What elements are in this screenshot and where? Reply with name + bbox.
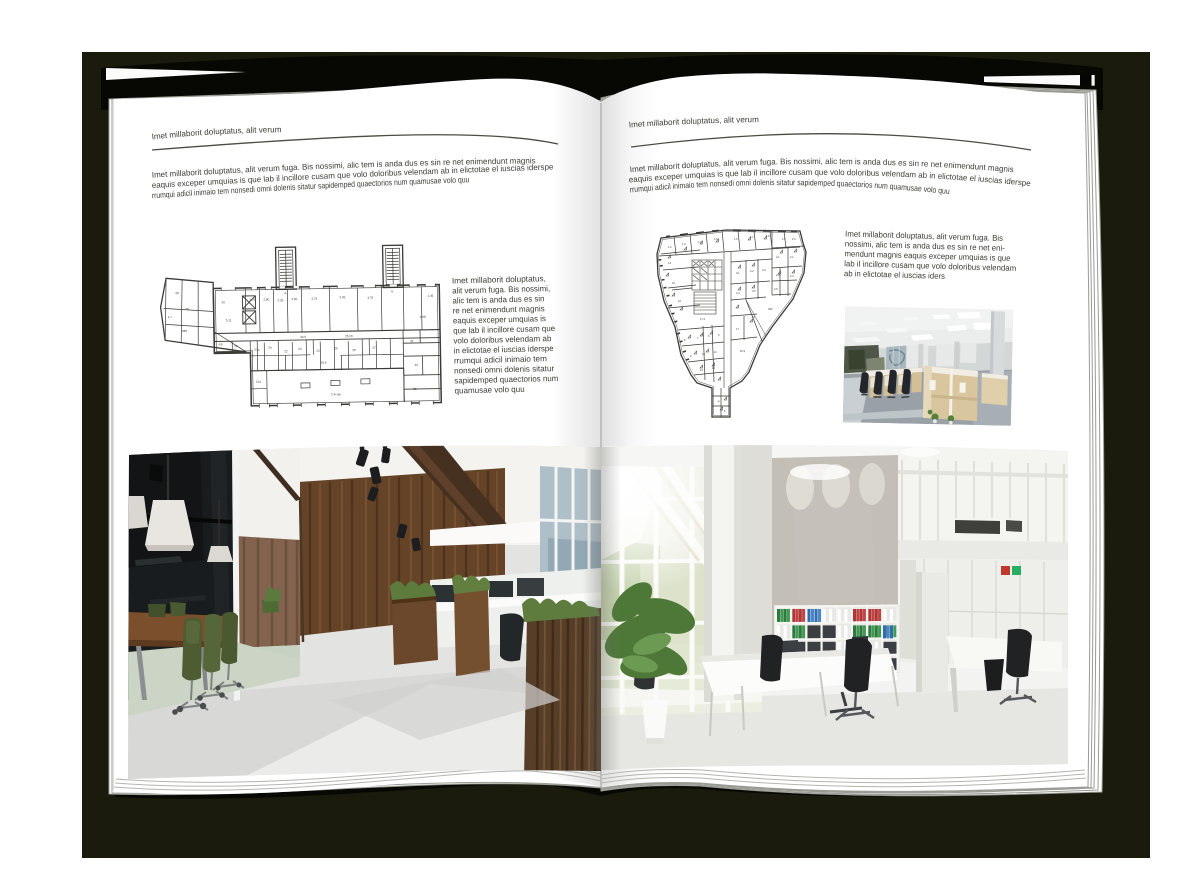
svg-text:Б: Б — [391, 289, 393, 293]
svg-text:17.2: 17.2 — [700, 317, 706, 321]
svg-text:A: A — [284, 291, 286, 295]
svg-text:1.5: 1.5 — [714, 237, 718, 241]
svg-text:26: 26 — [234, 344, 238, 348]
svg-text:286: 286 — [182, 329, 187, 333]
svg-text:2.0: 2.0 — [792, 237, 796, 241]
svg-text:3.3: 3.3 — [762, 268, 766, 272]
svg-text:1.6: 1.6 — [734, 237, 738, 241]
svg-text:24: 24 — [316, 349, 320, 353]
svg-text:2.30: 2.30 — [277, 298, 283, 302]
svg-text:3.75: 3.75 — [367, 296, 373, 300]
svg-text:40.9: 40.9 — [300, 335, 306, 339]
svg-text:1.8: 1.8 — [766, 234, 770, 238]
svg-text:300: 300 — [768, 307, 773, 311]
svg-text:1.9: 1.9 — [782, 237, 786, 241]
svg-text:2.5: 2.5 — [774, 287, 778, 291]
svg-text:20.9: 20.9 — [740, 349, 746, 353]
svg-text:3.09: 3.09 — [339, 295, 345, 299]
svg-text:22: 22 — [284, 349, 288, 353]
svg-text:2a: 2a — [268, 345, 272, 349]
svg-text:3.4: 3.4 — [736, 291, 740, 295]
svg-text:2.4: 2.4 — [790, 274, 794, 278]
svg-text:1.7: 1.7 — [750, 235, 754, 239]
svg-text:27: 27 — [372, 346, 376, 350]
svg-text:27a: 27a — [254, 348, 259, 352]
svg-text:3.75: 3.75 — [311, 297, 317, 301]
svg-text:3.00: 3.00 — [291, 297, 297, 301]
svg-text:12a: 12a — [256, 380, 261, 384]
svg-text:33: 33 — [413, 387, 417, 391]
svg-text:3.1: 3.1 — [736, 271, 740, 275]
svg-text:2.1: 2.1 — [776, 255, 780, 259]
svg-text:25.20: 25.20 — [345, 334, 353, 338]
svg-text:3.5: 3.5 — [752, 289, 756, 293]
svg-text:23: 23 — [298, 347, 302, 351]
svg-text:4.7: 4.7 — [168, 315, 173, 319]
svg-text:28: 28 — [175, 291, 179, 295]
svg-text:9.08: 9.08 — [420, 315, 426, 319]
svg-text:26: 26 — [352, 348, 356, 352]
svg-text:2.2: 2.2 — [790, 255, 794, 259]
svg-text:2-й зал: 2-й зал — [331, 392, 341, 396]
svg-text:2.3: 2.3 — [776, 273, 780, 277]
svg-text:1.3: 1.3 — [682, 242, 686, 246]
svg-text:4.8: 4.8 — [218, 342, 223, 346]
svg-text:2.80: 2.80 — [263, 298, 269, 302]
svg-text:3.2: 3.2 — [750, 269, 754, 273]
svg-text:5.11: 5.11 — [226, 318, 232, 322]
svg-text:quamusae volo quu: quamusae volo quu — [455, 385, 526, 396]
svg-text:36.6: 36.6 — [321, 361, 327, 365]
svg-text:1.45: 1.45 — [427, 294, 433, 298]
svg-text:1.2: 1.2 — [668, 245, 672, 249]
svg-text:2.75: 2.75 — [249, 298, 255, 302]
svg-text:30: 30 — [221, 300, 225, 304]
svg-text:1.4: 1.4 — [698, 240, 702, 244]
svg-text:31: 31 — [410, 339, 414, 343]
svg-text:29: 29 — [186, 307, 190, 311]
svg-text:25: 25 — [334, 346, 338, 350]
svg-text:32: 32 — [415, 363, 419, 367]
